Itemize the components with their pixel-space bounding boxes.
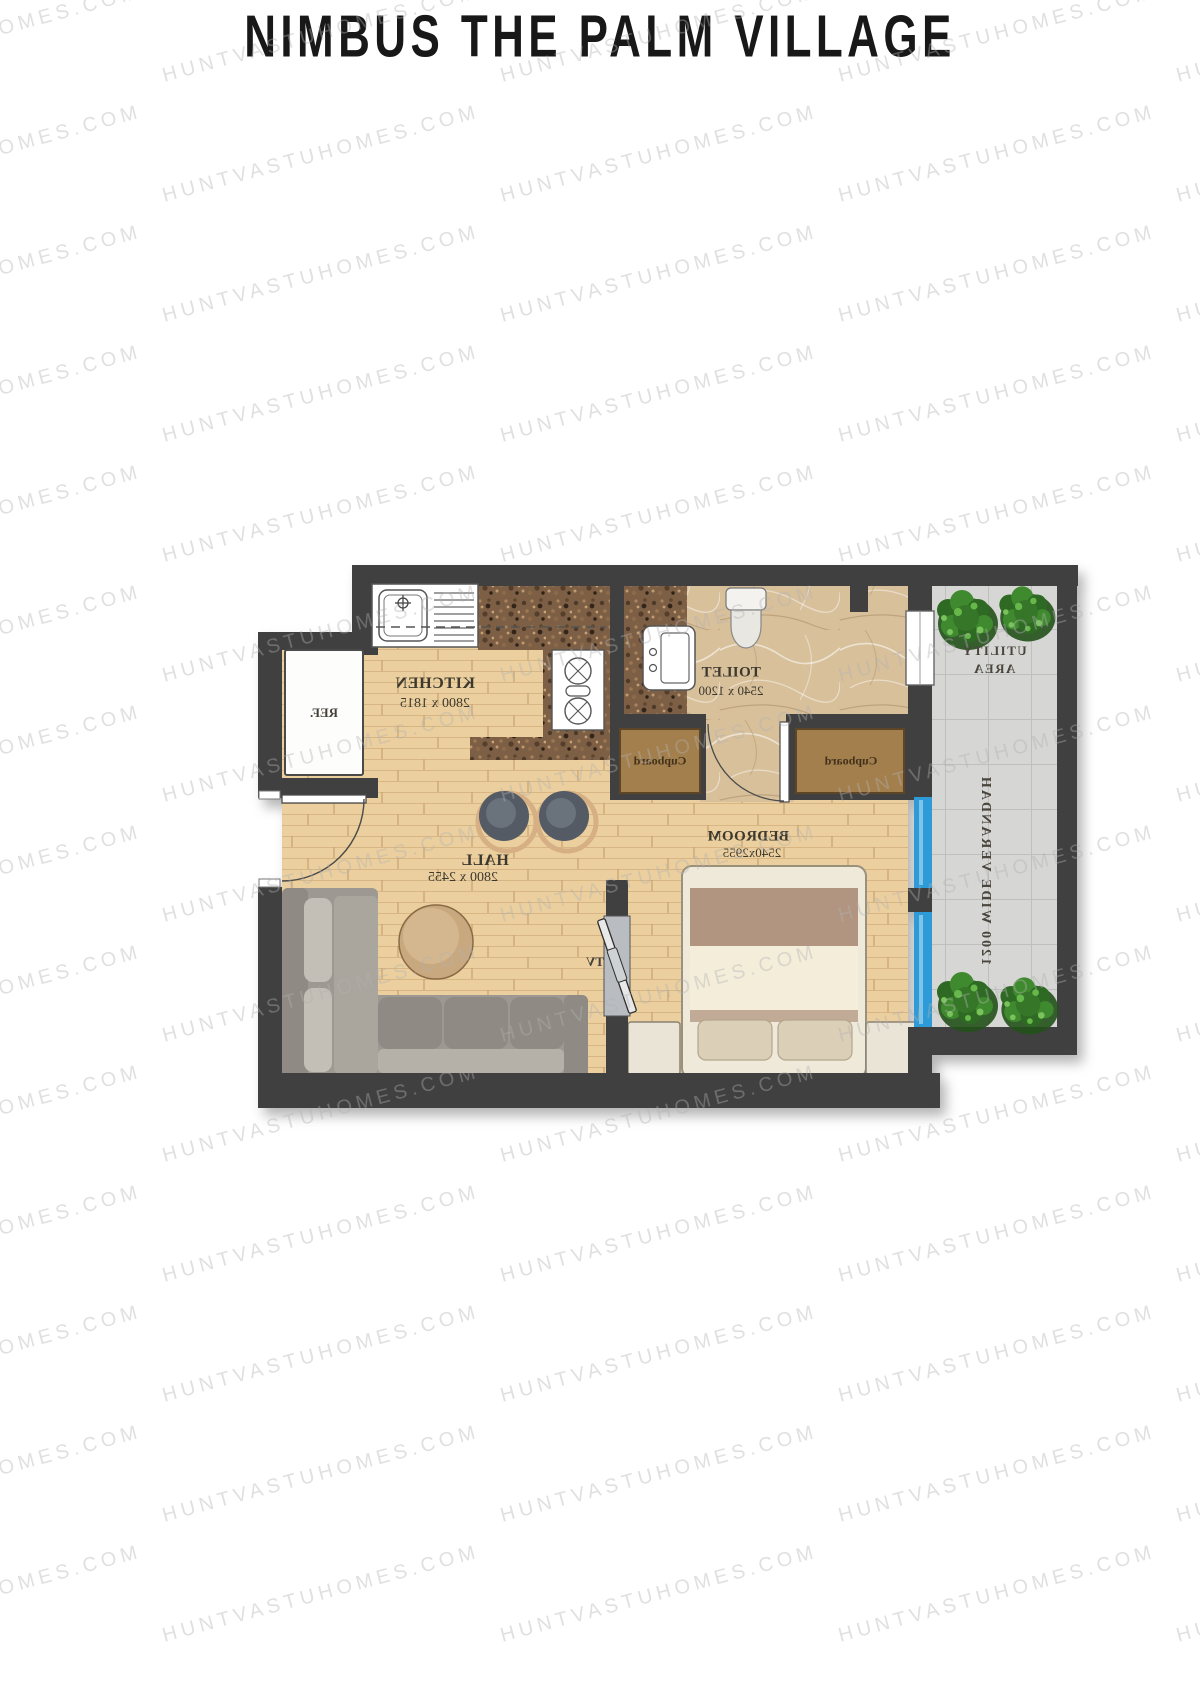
plan-title: NIMBUS THE PALM VILLAGE [72, 2, 1128, 70]
hall-label: HALL [461, 852, 509, 870]
coffee-table [399, 905, 473, 979]
toilet-dimensions: 2540 x 1200 [699, 683, 764, 699]
bedroom-dimensions: 2540x2955 [723, 845, 782, 861]
page: NIMBUS THE PALM VILLAGE [0, 0, 1200, 1697]
kitchen-label: KITCHEN [395, 675, 475, 693]
hall-dimensions: 2800 x 2455 [428, 870, 498, 886]
utility-area-label-line1: UTILITY [961, 643, 1026, 659]
utility-window [906, 611, 934, 685]
stove-hob [552, 650, 604, 730]
utility-area-label-line2: AREA [973, 661, 1016, 677]
nightstand-left [628, 1022, 680, 1075]
wash-basin [643, 626, 695, 690]
refrigerator-label: REF. [310, 705, 338, 721]
cupboard-left-label: Cupboard [634, 754, 687, 769]
tv-label: TV [586, 954, 604, 970]
kitchen-dimensions: 2800 x 1815 [400, 696, 470, 712]
bedroom-label: BEDROOM [707, 829, 789, 846]
toilet-label: TOILET [701, 665, 761, 682]
verandah-label: 1200 WIDE VERANDAH [825, 710, 1145, 1030]
